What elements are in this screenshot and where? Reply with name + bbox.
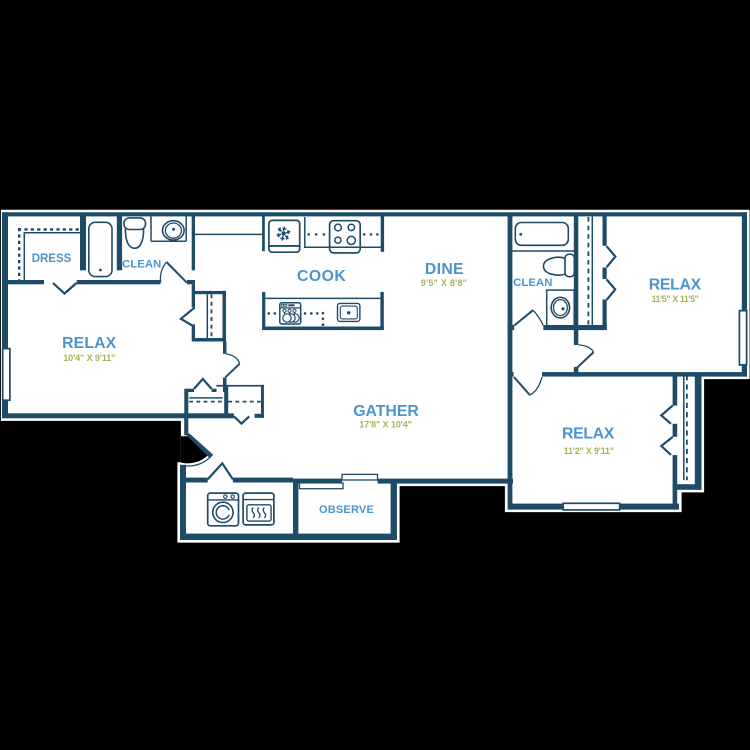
svg-text:9'5" X 8'8": 9'5" X 8'8" (421, 278, 468, 288)
svg-text:DINE: DINE (425, 261, 464, 278)
svg-text:COOK: COOK (297, 268, 346, 285)
svg-text:RELAX: RELAX (562, 425, 615, 442)
svg-text:CLEAN: CLEAN (122, 259, 161, 271)
svg-text:11'2" X 9'11": 11'2" X 9'11" (564, 446, 614, 456)
svg-text:RELAX: RELAX (62, 335, 116, 352)
svg-text:OBSERVE: OBSERVE (319, 504, 374, 516)
svg-text:RELAX: RELAX (649, 277, 702, 294)
svg-text:DRESS: DRESS (32, 253, 72, 265)
svg-text:GATHER: GATHER (353, 403, 419, 420)
svg-text:CLEAN: CLEAN (513, 277, 552, 289)
svg-text:17'8" X 10'4": 17'8" X 10'4" (359, 420, 412, 430)
svg-text:10'4" X 9'11": 10'4" X 9'11" (63, 353, 115, 363)
svg-text:11'5" X 11'5": 11'5" X 11'5" (651, 294, 698, 304)
